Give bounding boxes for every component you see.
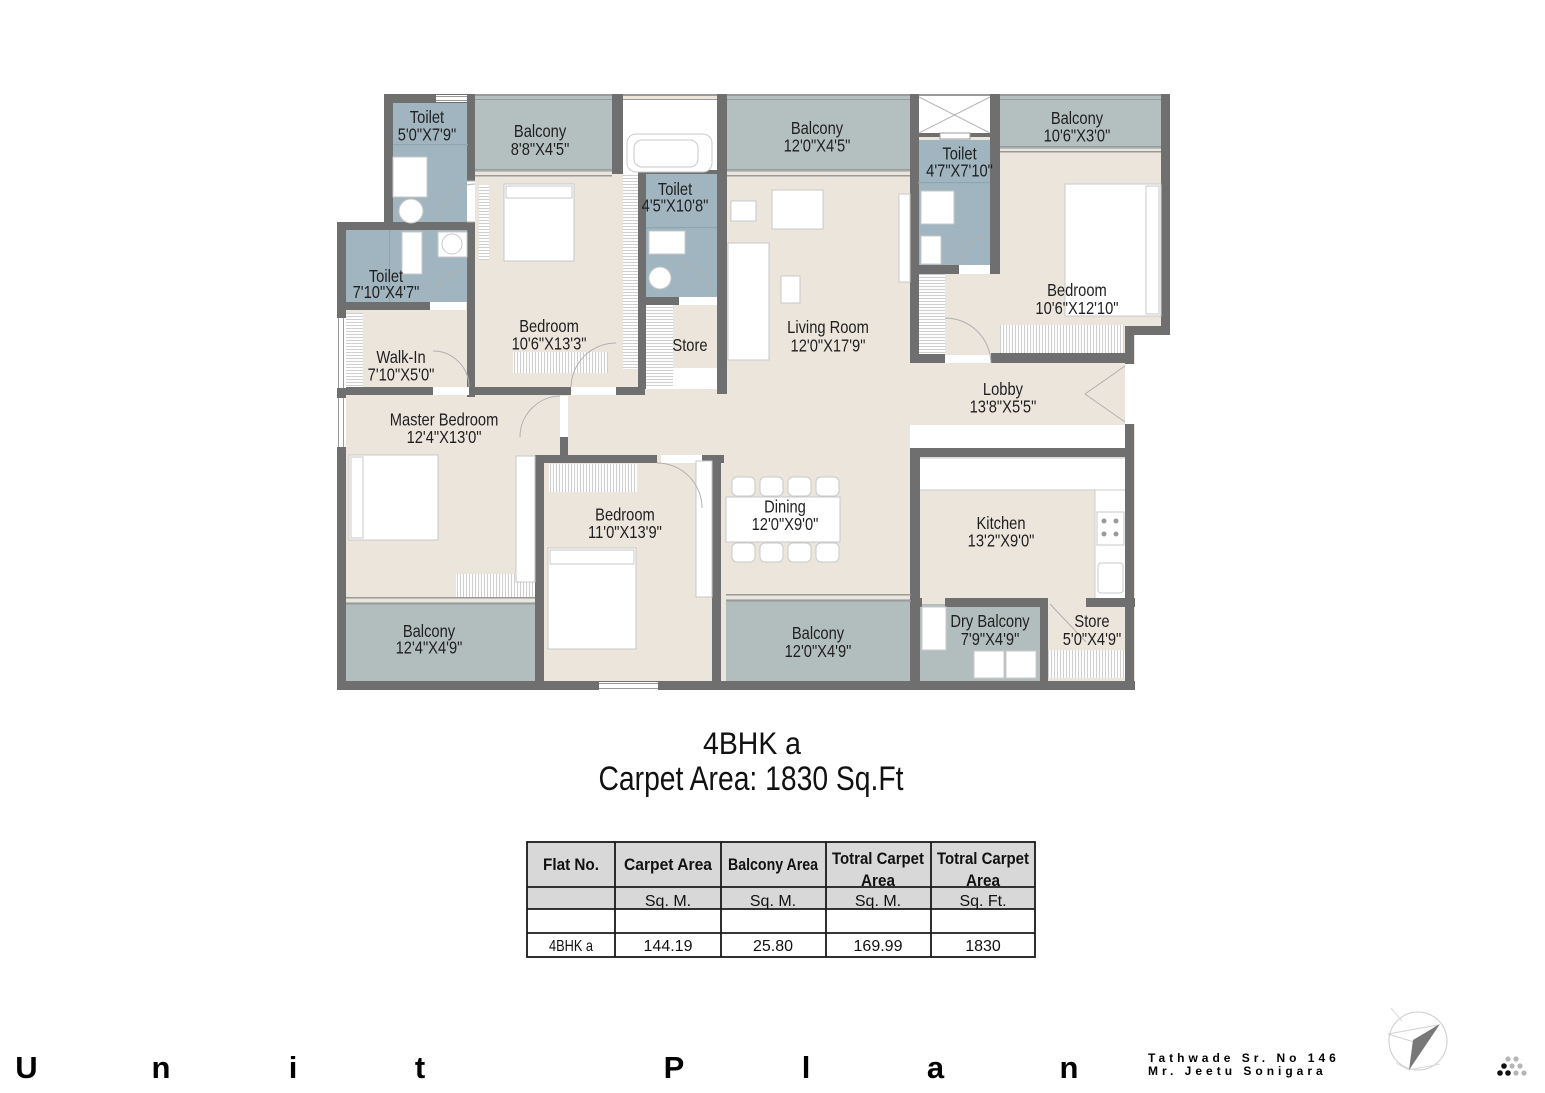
svg-text:U: U (15, 1050, 37, 1085)
svg-text:a: a (927, 1050, 945, 1085)
svg-text:10'6"X3'0": 10'6"X3'0" (1044, 126, 1111, 145)
svg-text:8'8"X4'5": 8'8"X4'5" (511, 140, 570, 159)
svg-text:25.80: 25.80 (753, 938, 793, 955)
svg-text:13'8"X5'5": 13'8"X5'5" (970, 397, 1037, 416)
svg-text:Sq. M.: Sq. M. (750, 893, 796, 910)
svg-text:Store: Store (672, 336, 707, 355)
svg-text:Balcony Area: Balcony Area (728, 855, 818, 874)
svg-text:Sq. M.: Sq. M. (645, 893, 691, 910)
svg-text:Bedroom: Bedroom (1047, 281, 1107, 300)
svg-text:7'10"X4'7": 7'10"X4'7" (353, 283, 420, 302)
svg-text:Carpet Area: 1830 Sq.Ft: Carpet Area: 1830 Sq.Ft (599, 760, 904, 798)
svg-text:12'4"X13'0": 12'4"X13'0" (407, 428, 482, 447)
svg-text:12'4"X4'9": 12'4"X4'9" (396, 638, 463, 657)
svg-text:n: n (152, 1050, 171, 1085)
svg-text:Area: Area (966, 871, 1000, 890)
svg-text:7'10"X5'0": 7'10"X5'0" (368, 365, 435, 384)
svg-text:7'9"X4'9": 7'9"X4'9" (961, 630, 1020, 649)
svg-text:10'6"X13'3": 10'6"X13'3" (512, 334, 587, 353)
svg-text:l: l (802, 1050, 811, 1085)
svg-text:n: n (1060, 1050, 1079, 1085)
svg-text:4'7"X7'10": 4'7"X7'10" (926, 161, 993, 180)
svg-text:4BHK a: 4BHK a (549, 938, 593, 955)
svg-text:144.19: 144.19 (644, 938, 693, 955)
svg-text:Sq. M.: Sq. M. (855, 893, 901, 910)
svg-text:Balcony: Balcony (514, 122, 567, 141)
svg-text:12'0"X17'9": 12'0"X17'9" (791, 336, 866, 355)
svg-text:Store: Store (1074, 612, 1109, 631)
svg-text:Living Room: Living Room (787, 318, 869, 337)
svg-text:Area: Area (861, 871, 895, 890)
svg-text:5'0"X4'9": 5'0"X4'9" (1063, 630, 1122, 649)
svg-text:12'0"X4'5": 12'0"X4'5" (784, 136, 851, 155)
svg-text:i: i (289, 1050, 298, 1085)
svg-text:Tathwade Sr. No 146: Tathwade Sr. No 146 (1148, 1051, 1340, 1065)
svg-text:169.99: 169.99 (854, 938, 903, 955)
svg-text:4BHK a: 4BHK a (703, 725, 801, 761)
svg-text:Carpet Area: Carpet Area (624, 855, 712, 874)
svg-text:1830: 1830 (965, 938, 1001, 955)
svg-text:P: P (664, 1050, 685, 1085)
svg-text:4'5"X10'8": 4'5"X10'8" (642, 196, 709, 215)
svg-text:Totral Carpet: Totral Carpet (937, 849, 1029, 868)
svg-text:Dry Balcony: Dry Balcony (950, 612, 1030, 631)
svg-text:Totral Carpet: Totral Carpet (832, 849, 924, 868)
svg-text:Balcony: Balcony (792, 624, 845, 643)
svg-text:Sq. Ft.: Sq. Ft. (959, 893, 1006, 910)
svg-text:11'0"X13'9": 11'0"X13'9" (588, 523, 662, 542)
svg-text:Mr. Jeetu Sonigara: Mr. Jeetu Sonigara (1148, 1064, 1327, 1078)
svg-text:13'2"X9'0": 13'2"X9'0" (968, 531, 1035, 550)
svg-text:5'0"X7'9": 5'0"X7'9" (398, 125, 457, 144)
svg-text:Flat No.: Flat No. (543, 855, 599, 874)
svg-text:t: t (415, 1050, 425, 1085)
svg-text:12'0"X4'9": 12'0"X4'9" (785, 642, 852, 661)
svg-text:12'0"X9'0": 12'0"X9'0" (752, 515, 819, 534)
svg-text:10'6"X12'10": 10'6"X12'10" (1035, 299, 1118, 318)
